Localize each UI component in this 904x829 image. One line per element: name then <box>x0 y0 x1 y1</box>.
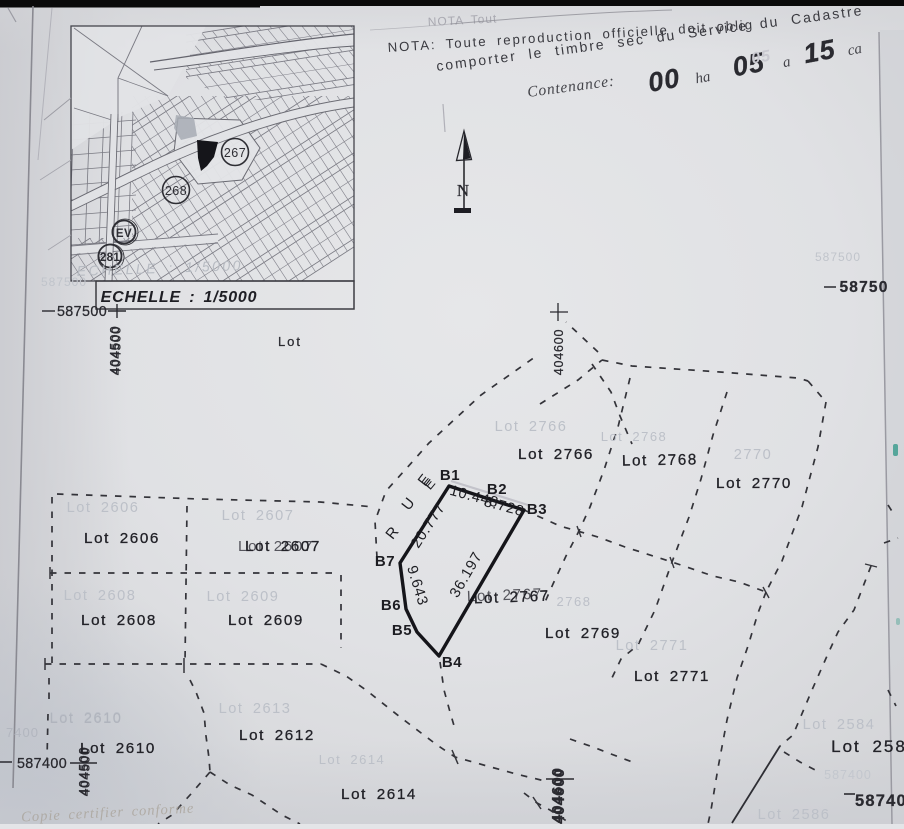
svg-text:587500: 587500 <box>57 304 107 320</box>
svg-text:Lot 2768: Lot 2768 <box>601 429 668 444</box>
svg-text:7400: 7400 <box>6 725 39 740</box>
svg-text:Lot 2766: Lot 2766 <box>518 446 594 463</box>
svg-text:Lot 2607: Lot 2607 <box>222 508 295 524</box>
svg-text:B3: B3 <box>527 501 547 518</box>
svg-text:Lot 2610: Lot 2610 <box>80 740 156 757</box>
svg-text:Lot 2614: Lot 2614 <box>341 786 417 803</box>
svg-text:B5: B5 <box>392 622 412 639</box>
svg-text:B1: B1 <box>440 467 460 484</box>
svg-text:587500: 587500 <box>815 250 861 264</box>
svg-text:Lot 2612: Lot 2612 <box>239 727 315 744</box>
svg-text:Lot 2768: Lot 2768 <box>622 451 698 469</box>
svg-text:Lot 2771: Lot 2771 <box>616 638 689 654</box>
svg-text:15: 15 <box>801 34 838 69</box>
svg-text:Lot 2608: Lot 2608 <box>81 612 157 629</box>
svg-text:Lot 2769: Lot 2769 <box>545 625 621 642</box>
svg-text:EV: EV <box>116 228 132 240</box>
svg-text:267: 267 <box>224 146 246 160</box>
svg-text:587400: 587400 <box>17 756 67 772</box>
svg-text:Lot 258: Lot 258 <box>831 737 904 756</box>
svg-text:Lot: Lot <box>278 334 302 349</box>
svg-text:ca: ca <box>846 41 863 59</box>
svg-text:Lot 2771: Lot 2771 <box>634 668 710 685</box>
svg-text:00: 00 <box>646 63 683 98</box>
svg-text:404500: 404500 <box>109 326 124 375</box>
svg-text:Lot 2584: Lot 2584 <box>803 717 876 733</box>
svg-text:Lot 2606: Lot 2606 <box>84 530 160 547</box>
svg-text:Lot 2766: Lot 2766 <box>495 419 568 435</box>
svg-text:587500: 587500 <box>41 275 87 289</box>
svg-text:58740: 58740 <box>855 792 904 810</box>
svg-text:58750: 58750 <box>839 279 888 296</box>
svg-text:N: N <box>457 181 469 200</box>
svg-text:Lot 2606: Lot 2606 <box>67 500 140 516</box>
svg-text:Lot 2613: Lot 2613 <box>219 701 292 717</box>
svg-text:Lot 2608: Lot 2608 <box>64 588 137 604</box>
svg-text:404600: 404600 <box>552 329 566 376</box>
svg-text:Lot 2607: Lot 2607 <box>245 538 321 555</box>
svg-text:B7: B7 <box>375 553 395 570</box>
svg-text:05: 05 <box>750 47 773 67</box>
svg-text:B4: B4 <box>442 654 462 671</box>
svg-text:Lot 2614: Lot 2614 <box>319 752 386 767</box>
svg-text:Lot 2609: Lot 2609 <box>207 589 280 605</box>
svg-text:Lot 2586: Lot 2586 <box>758 807 831 823</box>
svg-text:B6: B6 <box>381 597 401 614</box>
svg-text:587400: 587400 <box>824 768 872 782</box>
svg-text:Lot 2610: Lot 2610 <box>50 711 123 727</box>
svg-text:2768: 2768 <box>557 594 592 609</box>
svg-text:Lot 2767: Lot 2767 <box>474 588 550 608</box>
svg-text:ECHELLE : 1/5000: ECHELLE : 1/5000 <box>101 289 258 306</box>
svg-text:268: 268 <box>165 184 187 198</box>
svg-text:2770: 2770 <box>734 447 772 463</box>
svg-text:Lot 2609: Lot 2609 <box>228 612 304 629</box>
svg-text:Lot 2770: Lot 2770 <box>716 475 792 492</box>
svg-text:ha: ha <box>694 69 712 87</box>
svg-text:404600: 404600 <box>551 768 568 824</box>
